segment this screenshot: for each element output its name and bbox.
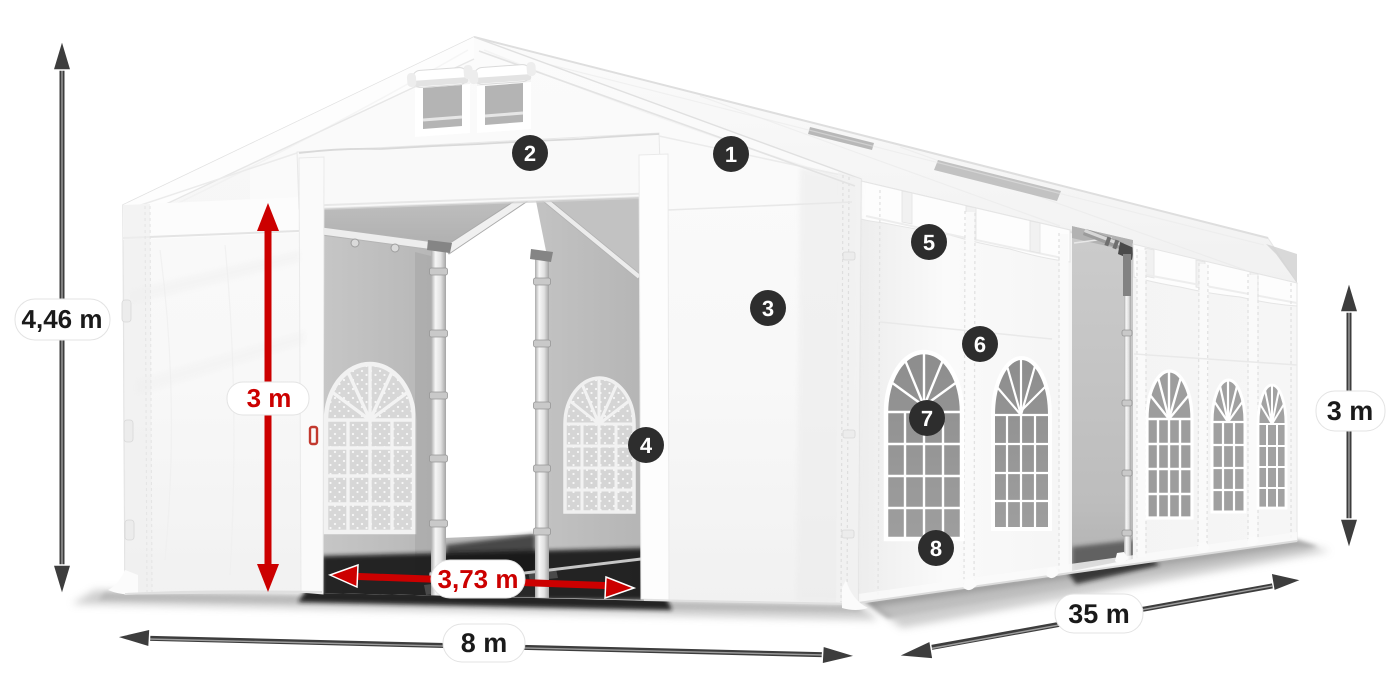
svg-text:3 m: 3 m (1327, 396, 1374, 426)
svg-text:4,46 m: 4,46 m (22, 304, 103, 334)
svg-text:4: 4 (640, 433, 653, 458)
svg-text:7: 7 (921, 406, 933, 431)
svg-text:3,73 m: 3,73 m (438, 564, 519, 594)
svg-text:3: 3 (762, 296, 774, 321)
svg-text:5: 5 (923, 230, 935, 255)
svg-text:8 m: 8 m (461, 628, 508, 658)
svg-text:6: 6 (974, 332, 986, 357)
svg-text:35 m: 35 m (1068, 599, 1130, 629)
svg-text:2: 2 (524, 141, 536, 166)
svg-text:1: 1 (725, 142, 737, 167)
svg-text:3 m: 3 m (247, 383, 292, 413)
svg-text:8: 8 (930, 536, 942, 561)
